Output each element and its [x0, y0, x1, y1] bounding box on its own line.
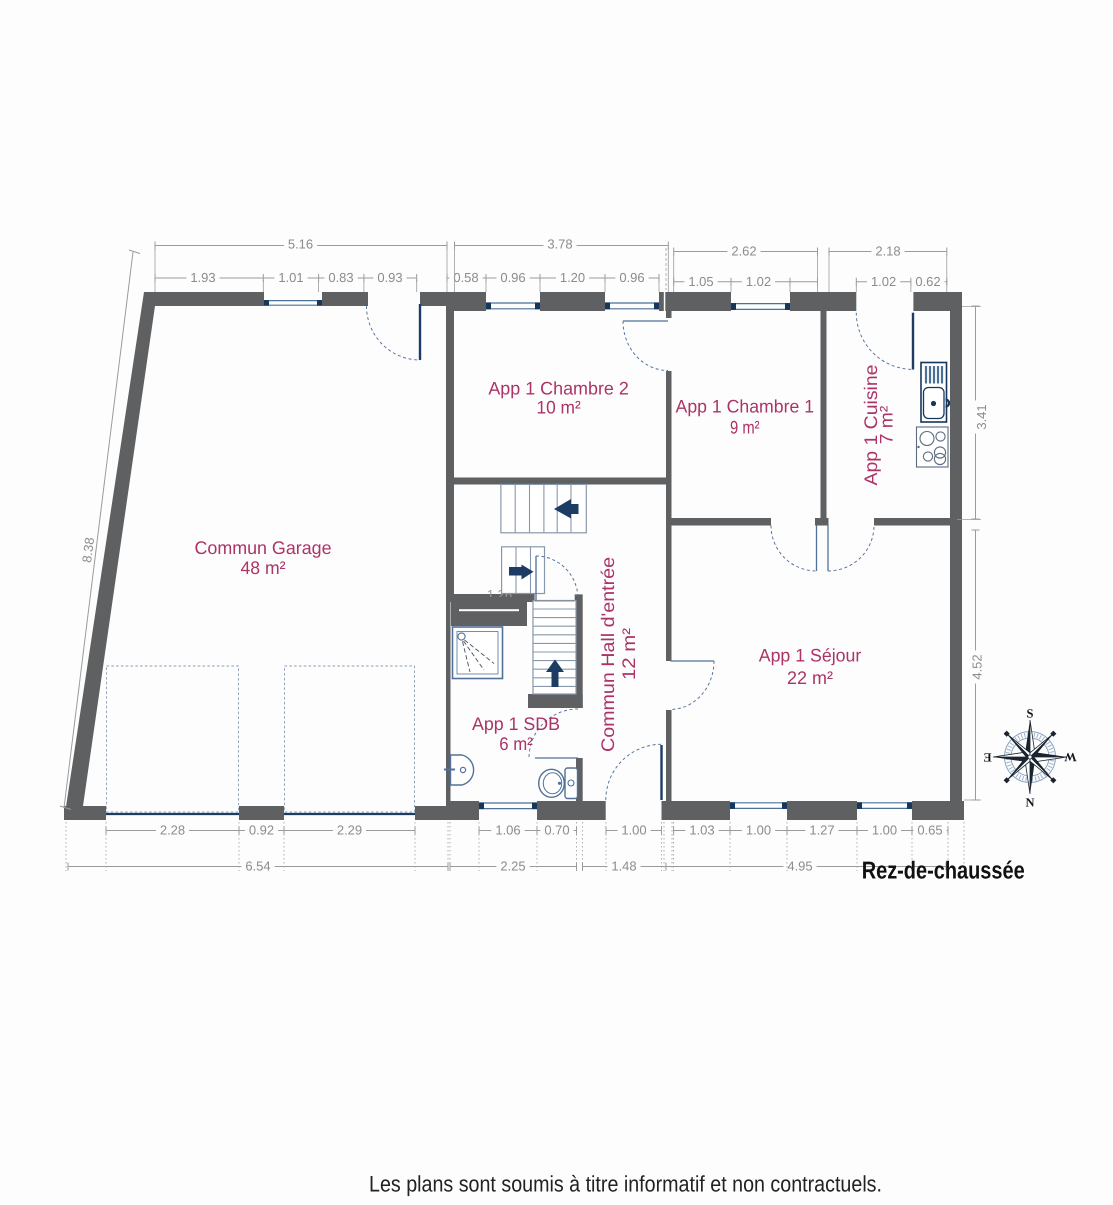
svg-text:1.20: 1.20	[560, 270, 585, 285]
svg-text:1.03: 1.03	[689, 823, 714, 838]
svg-text:1.00: 1.00	[872, 823, 897, 838]
svg-text:2.28: 2.28	[160, 823, 185, 838]
svg-text:0.58: 0.58	[453, 270, 478, 285]
svg-text:1.27: 1.27	[809, 823, 834, 838]
svg-text:6 m²: 6 m²	[499, 734, 533, 754]
svg-text:1.06: 1.06	[495, 823, 520, 838]
svg-text:1.00: 1.00	[621, 823, 646, 838]
svg-text:Rez-de-chaussée: Rez-de-chaussée	[862, 858, 1025, 885]
svg-text:App 1 Chambre 1: App 1 Chambre 1	[676, 397, 815, 417]
svg-text:3.78: 3.78	[547, 237, 572, 252]
svg-text:App 1 Chambre 2: App 1 Chambre 2	[488, 378, 629, 398]
svg-text:App 1 Séjour: App 1 Séjour	[759, 645, 862, 665]
svg-text:2.62: 2.62	[731, 244, 756, 259]
svg-text:0.70: 0.70	[544, 823, 569, 838]
svg-text:2.25: 2.25	[500, 859, 525, 874]
svg-text:Commun Hall d'entrée: Commun Hall d'entrée	[598, 557, 618, 752]
svg-text:E: E	[983, 751, 991, 765]
svg-text:10 m²: 10 m²	[536, 398, 580, 418]
svg-text:0.65: 0.65	[917, 823, 942, 838]
svg-text:3.41: 3.41	[974, 404, 989, 429]
svg-text:0.62: 0.62	[915, 274, 940, 289]
svg-text:9 m²: 9 m²	[730, 418, 760, 438]
svg-text:0.83: 0.83	[328, 270, 353, 285]
svg-text:1.01: 1.01	[278, 270, 303, 285]
svg-text:1.02: 1.02	[746, 274, 771, 289]
svg-text:7 m²: 7 m²	[876, 406, 896, 445]
svg-text:1.48: 1.48	[611, 859, 636, 874]
svg-text:0.96: 0.96	[500, 270, 525, 285]
svg-text:1.05: 1.05	[688, 274, 713, 289]
svg-text:48 m²: 48 m²	[241, 558, 286, 578]
svg-text:1.02: 1.02	[871, 274, 896, 289]
svg-text:5.16: 5.16	[288, 237, 313, 252]
svg-text:4.95: 4.95	[787, 859, 812, 874]
svg-text:2.29: 2.29	[337, 823, 362, 838]
svg-text:1.00: 1.00	[746, 823, 771, 838]
svg-text:App 1 SDB: App 1 SDB	[472, 714, 560, 734]
svg-text:2.18: 2.18	[875, 244, 900, 259]
svg-text:Commun Garage: Commun Garage	[195, 538, 332, 558]
svg-text:12 m²: 12 m²	[619, 628, 639, 680]
svg-text:W: W	[1064, 750, 1077, 764]
svg-text:Les plans sont soumis à titre: Les plans sont soumis à titre informatif…	[369, 1171, 882, 1196]
svg-text:8.38: 8.38	[79, 537, 97, 564]
svg-text:0.93: 0.93	[377, 270, 402, 285]
svg-text:0.92: 0.92	[249, 823, 274, 838]
svg-text:4.52: 4.52	[970, 654, 985, 679]
svg-text:0.96: 0.96	[619, 270, 644, 285]
svg-text:6.54: 6.54	[245, 859, 270, 874]
svg-text:N: N	[1025, 796, 1034, 810]
svg-text:1.93: 1.93	[190, 270, 215, 285]
svg-text:22 m²: 22 m²	[787, 668, 833, 688]
svg-text:S: S	[1027, 707, 1034, 721]
